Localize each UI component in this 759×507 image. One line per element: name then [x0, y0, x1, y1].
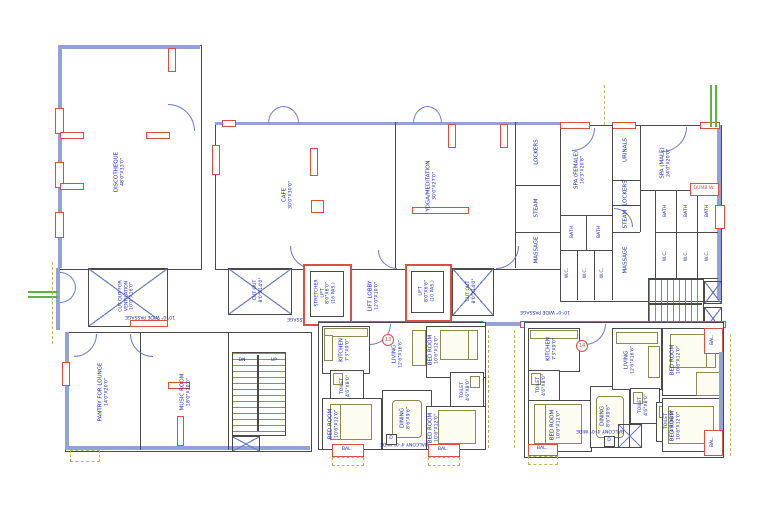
duct-box: [232, 436, 260, 452]
bedroom-label: BED ROOM10'6"X12'0": [428, 413, 441, 443]
wall-segment: [65, 332, 69, 450]
cutout-label: CUT OUT8'0"X14'0": [253, 277, 265, 302]
wall-segment: [676, 190, 677, 278]
dashed-line: [488, 330, 489, 448]
wall-segment: [560, 250, 612, 251]
kitchen-label: KITCHEN7'3"X9'0": [339, 338, 352, 362]
dining-label: DINING8'6"X9'6": [400, 407, 413, 429]
door-arc: [413, 106, 428, 123]
pantry-label: PANTRY FOR LOUNGE14'0"X20'0": [98, 363, 111, 422]
passage-label: 10'-0" WIDE PASSAGE: [520, 308, 570, 314]
wall-segment: [222, 120, 236, 127]
wall-segment: [577, 250, 578, 300]
dashed-line: [604, 85, 605, 125]
steam-label: STEAM: [623, 210, 630, 229]
grid-line-green: [28, 291, 58, 293]
massage-label: MASSAGE: [623, 247, 630, 274]
wall-segment: [55, 212, 64, 238]
door-arc: [60, 287, 76, 303]
wall-segment: [719, 352, 723, 430]
bedroom-label: BED ROOM10'6"X12'0": [428, 335, 441, 365]
bedroom-label: BED ROOM10'6"X12'0": [550, 410, 563, 440]
sofa: [616, 332, 658, 344]
door-arc: [283, 106, 299, 123]
yoga-label: YOGA/MEDITATION30'0"X27'0": [426, 160, 439, 211]
wc-label: W.C.: [705, 251, 711, 261]
wc-label: W.C.: [684, 251, 690, 261]
lockers-label: LOCKERS: [534, 139, 541, 164]
d-marker-label: D: [389, 436, 393, 442]
wc-label: W.C.: [583, 268, 589, 278]
floor-plan: DISCOTHEQUE48'0"X33'0" CAFE30'0"X30'0" Y…: [0, 0, 759, 507]
duct-box: [704, 281, 722, 304]
wall-segment: [500, 124, 508, 148]
bedroom-label: BED ROOM10'6"X12'0": [670, 345, 683, 375]
lift-label: LIFT8'0"X6'6"(10 PAS.): [418, 280, 435, 302]
wall-segment: [65, 446, 310, 450]
bed-pillow: [534, 404, 546, 444]
wall-segment: [55, 108, 64, 134]
bal-label: BAL.: [710, 437, 716, 447]
wall-segment: [228, 332, 229, 450]
wc-label: W.C.: [663, 251, 669, 261]
wall-segment: [515, 232, 560, 233]
bath-label: BATH: [597, 226, 603, 238]
sofa: [412, 330, 426, 366]
wall-segment: [177, 416, 184, 446]
sofa: [648, 346, 660, 378]
wall-segment: [212, 145, 220, 175]
wall-segment: [146, 132, 170, 139]
balcony-label: BALCONY 4'-0" WIDE: [576, 427, 624, 433]
unit-number-badge: 14: [576, 340, 588, 352]
grid-line-green: [710, 85, 712, 127]
toilet-label: TOILET4'6"X8'0": [340, 375, 352, 397]
dashed-outline: [332, 457, 364, 466]
living-label: LIVING12'6"X16'6": [624, 346, 637, 374]
wall-segment: [655, 190, 656, 278]
wall-segment: [640, 125, 641, 232]
wall-segment: [62, 362, 70, 386]
dashed-outline: [528, 456, 558, 465]
door-arc: [60, 272, 76, 288]
toilet-label: TOILET4'6"X8'0": [536, 374, 548, 396]
wall-segment: [586, 215, 587, 250]
bal-label: BAL.: [438, 447, 448, 453]
cutout-label: CUT OUT8'0"X14'0": [466, 278, 478, 303]
bedroom-label: BED ROOM10'6"X12'0": [328, 409, 341, 439]
wall-segment: [612, 122, 636, 129]
wall-segment: [395, 122, 396, 268]
music-room-label: MUSIC ROOM18'0"X20'0": [180, 374, 193, 411]
bal-label: BAL.: [537, 446, 547, 452]
wall-segment: [60, 183, 84, 190]
dashed-line: [514, 330, 515, 448]
wall-segment: [310, 148, 318, 176]
bed-pillow: [468, 330, 478, 360]
spa-male-label: SPA (MALE)24'0"X20'0": [660, 147, 673, 178]
steam-label: STEAM: [534, 199, 541, 218]
wall-segment: [60, 132, 84, 139]
wall-segment: [715, 205, 725, 229]
stair-up-label: UP: [271, 358, 277, 364]
wall-segment: [168, 48, 176, 72]
wall-segment: [655, 232, 718, 233]
dashed-outline: [428, 457, 460, 466]
kitchen-label: KITCHEN7'3"X9'0": [546, 337, 559, 361]
wall-segment: [130, 320, 168, 327]
column: [311, 200, 324, 213]
bal-label: BAL.: [342, 447, 352, 453]
spa-female-label: SPA (FEMALE)16'3"X20'8": [574, 151, 587, 189]
door-arc: [268, 106, 284, 123]
wall-segment: [412, 207, 469, 214]
d-marker-label: D: [607, 438, 611, 444]
door-arc: [427, 106, 442, 123]
lockers-label: LOCKERS: [623, 180, 630, 205]
wall-segment: [612, 232, 640, 233]
wall-segment: [448, 124, 456, 148]
wall-segment: [58, 45, 200, 49]
toilet-label: TOILET4'6"X8'0": [638, 394, 650, 416]
dashed-outline: [70, 450, 100, 462]
cutout-ventilation-label: CUT OUT FORVENTILATION10'0"X16'0": [118, 280, 135, 312]
wall-segment: [594, 250, 595, 300]
lift-lobby-label: LIFT LOBBY12'0"X10'0": [368, 281, 381, 312]
stair-rail: [648, 303, 702, 305]
wall-segment: [515, 185, 560, 186]
urinals-label: URINALS: [623, 138, 630, 162]
kitchen-counter: [324, 335, 333, 361]
bath-label: BATH: [684, 205, 690, 217]
toilet-label: TOILET4'6"X8'0": [460, 379, 472, 401]
wall-segment: [215, 122, 560, 125]
discotheque-room: [58, 45, 202, 270]
stair-dn-label: DN: [239, 358, 246, 364]
dumb-waiter-label: DUMB W.: [694, 186, 715, 192]
cafe-label: CAFE30'0"X30'0": [282, 181, 295, 209]
dashed-line: [52, 262, 53, 344]
bath-label: BATH: [570, 226, 576, 238]
living-label: LIVING12'6"X16'6": [392, 340, 405, 368]
grid-line-green: [28, 296, 58, 298]
bath-label: BATH: [705, 205, 711, 217]
wc-label: W.C.: [565, 268, 571, 278]
staircase-left: [232, 352, 286, 436]
bed: [438, 410, 476, 444]
wall-segment: [697, 190, 698, 278]
stretcher-lift-label: STRETCHERLIFT8'0"X8'0"(16 PAS.): [314, 279, 337, 306]
dashed-line: [730, 334, 731, 456]
bedroom-label: BED ROOM10'6"X12'0": [670, 411, 683, 441]
discotheque-label: DISCOTHEQUE48'0"X33'0": [114, 152, 127, 192]
wc-label: W.C.: [600, 268, 606, 278]
dining-label: DINING8'6"X9'6": [600, 405, 613, 427]
massage-label: MASSAGE: [534, 237, 541, 264]
bath-label: BATH: [663, 205, 669, 217]
bal-label: BAL.: [710, 335, 716, 345]
grid-line-green: [715, 85, 717, 127]
stair-rail: [257, 355, 259, 431]
wall-segment: [612, 125, 613, 300]
